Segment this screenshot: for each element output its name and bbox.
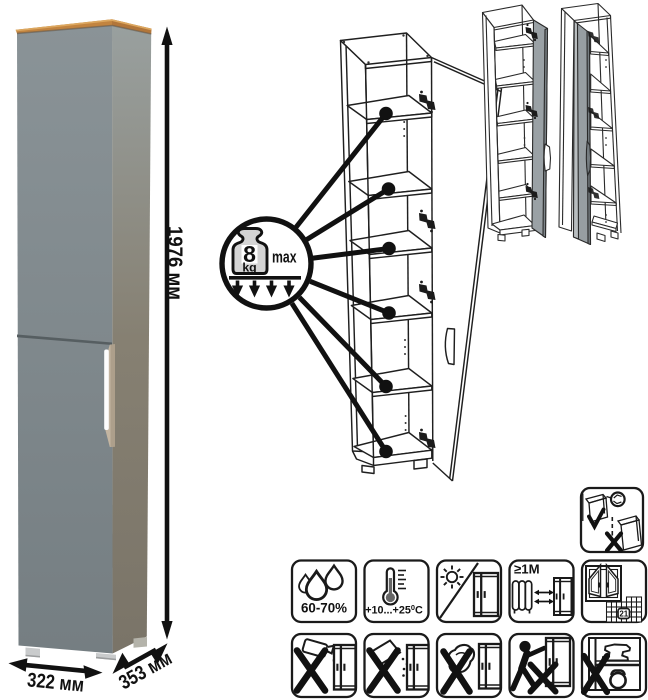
svg-text:1976 мм: 1976 мм (164, 226, 187, 300)
svg-text:+10...+250C: +10...+250C (365, 603, 423, 617)
svg-text:322 мм: 322 мм (26, 669, 85, 696)
svg-text:kg: kg (242, 260, 256, 274)
svg-text:60-70%: 60-70% (301, 601, 347, 616)
svg-text:max: max (272, 248, 297, 267)
svg-text:21: 21 (619, 610, 628, 619)
svg-text:≥1М: ≥1М (514, 562, 540, 577)
